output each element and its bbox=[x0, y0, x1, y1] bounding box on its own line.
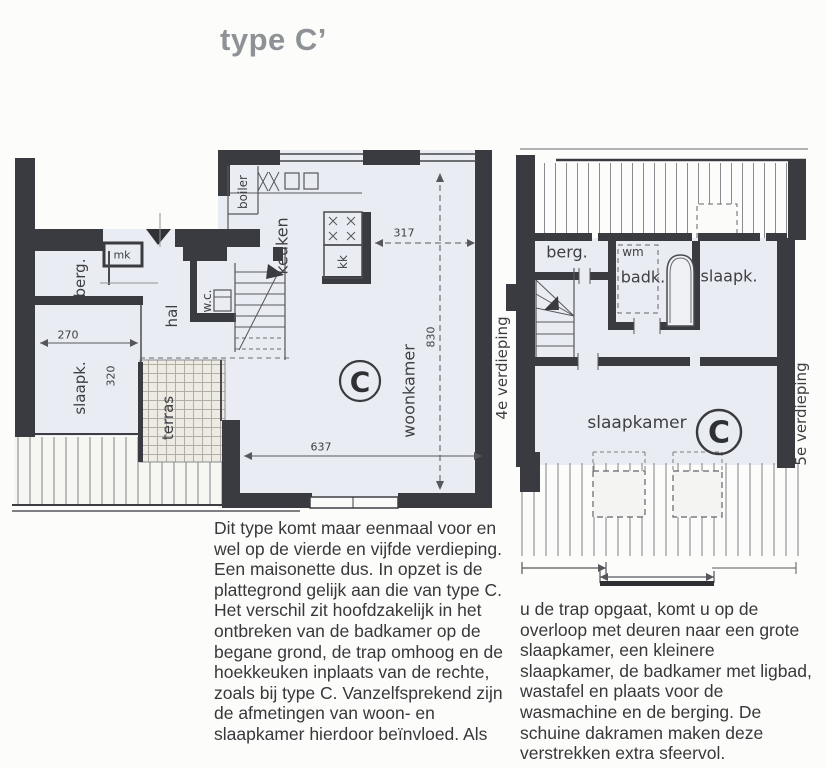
room-label-terras: terras bbox=[159, 396, 177, 440]
room-label-berg-4th: berg. bbox=[71, 259, 89, 298]
page-title: type C’ bbox=[220, 22, 327, 58]
room-label-woonkamer: woonkamer bbox=[400, 344, 419, 438]
room-label-berg-5th: berg. bbox=[546, 243, 588, 262]
room-label-wc: w.c. bbox=[200, 290, 214, 313]
room-label-slaapk-5th: slaapk. bbox=[701, 267, 758, 286]
dim-label-270: 270 bbox=[58, 329, 79, 342]
dim-label-830: 830 bbox=[425, 327, 438, 348]
floorplan-5th-floor bbox=[506, 149, 808, 586]
floorplan-4th-floor bbox=[12, 150, 492, 511]
description-column-right: u de trap opgaat, komt u op de overloop … bbox=[520, 599, 812, 764]
room-label-boiler: boiler bbox=[236, 175, 250, 209]
type-badge-4th: C bbox=[350, 366, 371, 399]
floor-label-5th: 5e verdieping bbox=[792, 362, 810, 465]
dim-label-317: 317 bbox=[394, 227, 415, 240]
floor-label-4th: 4e verdieping bbox=[493, 316, 511, 419]
room-label-mk: mk bbox=[113, 249, 130, 262]
room-label-slaapkamer: slaapkamer bbox=[587, 413, 686, 433]
room-label-kk: kk bbox=[336, 255, 350, 269]
dim-label-320: 320 bbox=[105, 366, 118, 387]
type-badge-5th: C bbox=[708, 416, 730, 451]
brochure-page: type C’ bbox=[0, 0, 826, 768]
room-label-wm: wm bbox=[622, 245, 644, 259]
room-label-keuken: keuken bbox=[273, 217, 292, 274]
room-label-hal: hal bbox=[163, 305, 181, 328]
room-label-badk: badk. bbox=[621, 268, 665, 287]
room-label-slaapk-4th: slaapk. bbox=[71, 361, 89, 414]
description-column-left: Dit type komt maar eenmaal voor en wel o… bbox=[214, 518, 506, 745]
dim-label-637: 637 bbox=[311, 441, 332, 454]
